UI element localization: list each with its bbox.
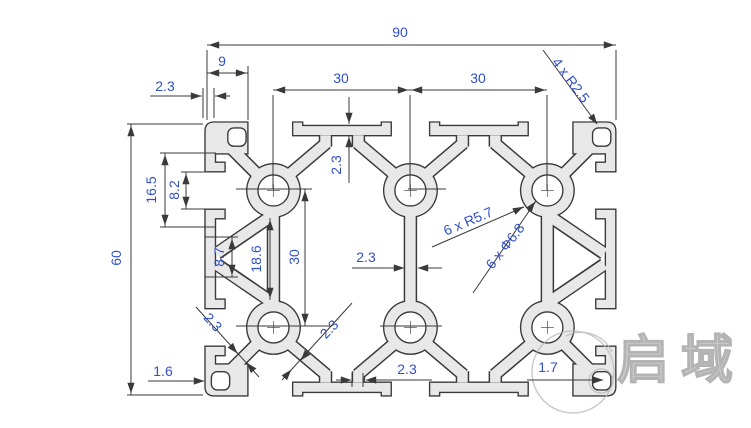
corner-hole — [593, 372, 611, 390]
corner-hole — [593, 128, 611, 146]
dim-mid-lip-gap: 8.7 — [212, 247, 226, 266]
dim-corner-width: 9 — [218, 54, 226, 68]
dim-side-slot-inner: 16.5 — [144, 176, 158, 203]
dim-total-height: 60 — [109, 250, 123, 266]
dim-center-web: 2.3 — [356, 250, 375, 264]
dim-slot-pitch-1: 30 — [333, 71, 349, 85]
watermark-brand-text: 启域 — [617, 334, 745, 389]
dim-flange-thickness: 2.3 — [329, 155, 343, 174]
dim-total-width: 90 — [392, 25, 408, 39]
dim-wall-top-left: 2.3 — [155, 79, 174, 93]
dim-side-slot-opening: 8.2 — [167, 180, 181, 199]
bottom-cap-2 — [430, 382, 529, 396]
bottom-cap-1 — [293, 382, 392, 396]
dim-corner-wall-left: 1.6 — [153, 364, 172, 378]
corner-hole — [211, 372, 229, 390]
right-mid-flange — [596, 209, 616, 309]
dim-corner-wall-right: 1.7 — [538, 360, 557, 374]
dim-boss-gap: 18.6 — [249, 245, 263, 272]
top-cap-1 — [293, 122, 392, 136]
dim-hole-pitch-v: 30 — [287, 249, 301, 265]
dim-slot-pitch-2: 30 — [470, 71, 486, 85]
corner-hole — [228, 128, 246, 146]
technical-drawing-canvas: { "drawing": { "dims": { "total_width": … — [0, 0, 751, 428]
top-cap-2 — [430, 122, 529, 136]
dim-bottom-web: 2.3 — [397, 362, 416, 376]
